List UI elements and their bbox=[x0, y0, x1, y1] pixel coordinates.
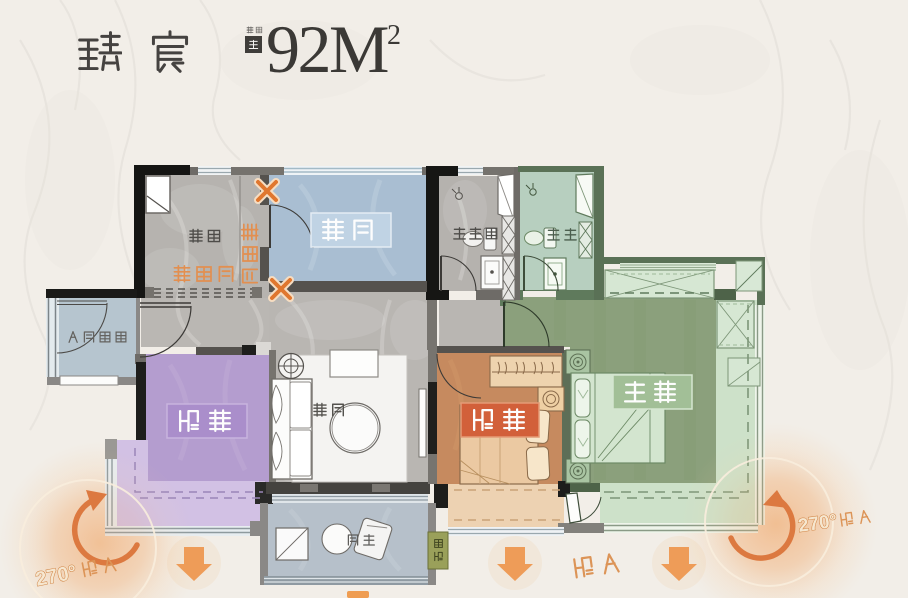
svg-text:92M2: 92M2 bbox=[266, 11, 401, 87]
